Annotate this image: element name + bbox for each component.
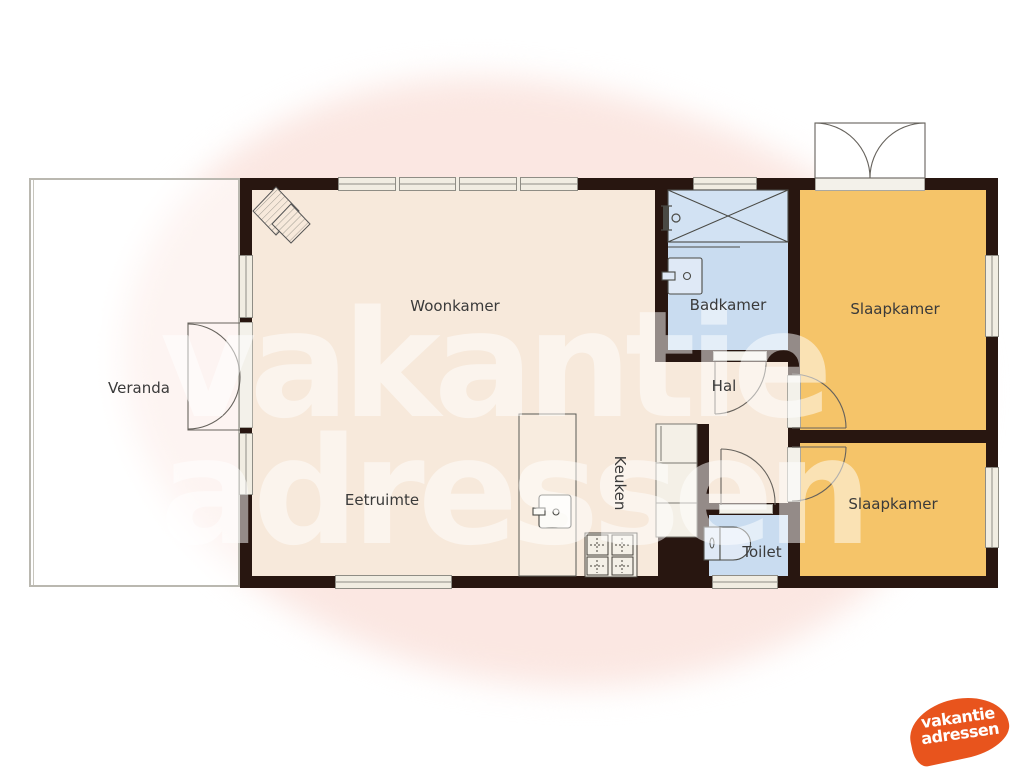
entry-door-threshold <box>815 177 925 191</box>
label-veranda: Veranda <box>108 379 170 397</box>
veranda-inner-line <box>33 180 34 585</box>
window-bedroom2-right <box>985 467 999 548</box>
window-bathroom-top <box>693 177 757 191</box>
vakantieadressen-logo: vakantieadressen <box>905 697 1013 763</box>
window-mullion <box>455 177 460 191</box>
label-keuken: Keuken <box>611 456 629 511</box>
label-hal: Hal <box>712 377 737 395</box>
floorplan-page: { "plan": { "type": "floorplan", "rooms"… <box>0 0 1024 768</box>
label-woonkamer: Woonkamer <box>410 297 499 315</box>
entry-double-door-icon <box>815 123 925 178</box>
label-slaapkamer-2: Slaapkamer <box>848 495 937 513</box>
label-toilet: Toilet <box>742 543 781 561</box>
window-mullion <box>395 177 400 191</box>
watermark-text: vakantieadressen <box>160 302 865 556</box>
label-eetruimte: Eetruimte <box>345 491 419 509</box>
label-slaapkamer-1: Slaapkamer <box>850 300 939 318</box>
window-bedroom1-right <box>985 255 999 337</box>
window-mullion <box>516 177 521 191</box>
label-badkamer: Badkamer <box>690 296 767 314</box>
